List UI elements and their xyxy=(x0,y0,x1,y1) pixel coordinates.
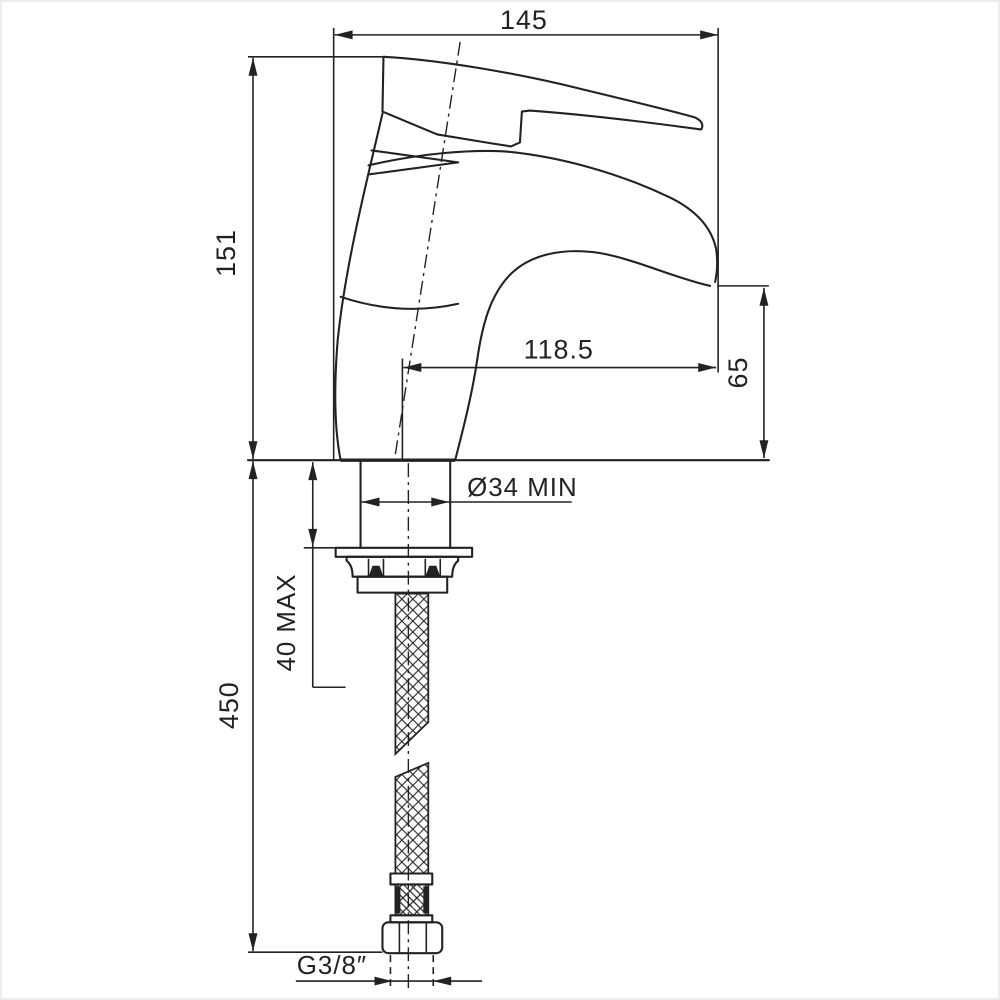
dim-spout-reach-label: 118.5 xyxy=(524,335,594,365)
body-left-edge xyxy=(335,114,382,461)
hose-ferrule-top xyxy=(390,874,432,885)
dim-deck-thickness: 40 MAX xyxy=(273,462,346,687)
handle-lever xyxy=(382,57,702,147)
spout-top-edge xyxy=(369,151,718,282)
faucet-outline xyxy=(335,42,717,460)
drawing-sheet: 145 151 118.5 65 xyxy=(0,0,1000,1000)
dimensions: 145 151 118.5 65 xyxy=(211,5,769,986)
crimp-band-left xyxy=(395,886,400,913)
dim-spout-reach: 118.5 xyxy=(402,335,716,461)
hose-lower-segment xyxy=(395,763,428,874)
dim-hose-length-label: 450 xyxy=(214,681,244,729)
dim-hole-diameter: Ø34 MIN xyxy=(362,474,578,506)
dim-top-width: 145 xyxy=(334,5,718,460)
mounting-nut xyxy=(347,557,459,577)
crimp-band-right xyxy=(423,886,428,913)
dim-thread: G3/8″ xyxy=(296,952,482,985)
dim-body-height-label: 151 xyxy=(211,229,241,277)
cartridge-centerline xyxy=(394,42,460,460)
dim-hose-length: 450 xyxy=(214,461,382,952)
neck-joint-line xyxy=(341,297,459,309)
supply-hose xyxy=(382,463,442,993)
dim-body-height: 151 xyxy=(211,57,383,459)
nut-facet-shade-left xyxy=(369,566,384,577)
hose-upper-segment xyxy=(395,594,428,754)
dim-deck-thickness-label: 40 MAX xyxy=(273,573,301,671)
dim-hole-diameter-label: Ø34 MIN xyxy=(467,474,578,502)
technical-drawing-canvas: 145 151 118.5 65 xyxy=(2,2,998,998)
dim-thread-label: G3/8″ xyxy=(297,952,367,980)
dim-top-width-label: 145 xyxy=(500,5,548,35)
end-nut-facets xyxy=(399,922,426,953)
dim-spout-height-label: 65 xyxy=(723,357,753,389)
flange-washer xyxy=(336,548,472,557)
nut-facet-shade-right xyxy=(425,566,440,577)
shank-collar xyxy=(358,577,448,593)
hose-end-nut xyxy=(382,922,442,953)
dim-spout-height: 65 xyxy=(717,286,769,458)
hose-ferrule-bottom xyxy=(390,915,432,922)
